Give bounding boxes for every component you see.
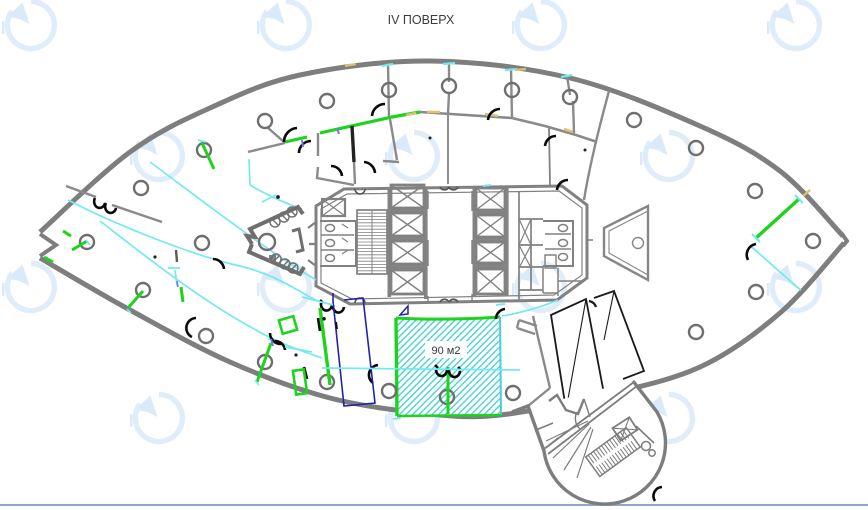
svg-text:IV ПОВЕРХ: IV ПОВЕРХ bbox=[388, 13, 455, 27]
svg-text:90 м2: 90 м2 bbox=[432, 345, 461, 357]
